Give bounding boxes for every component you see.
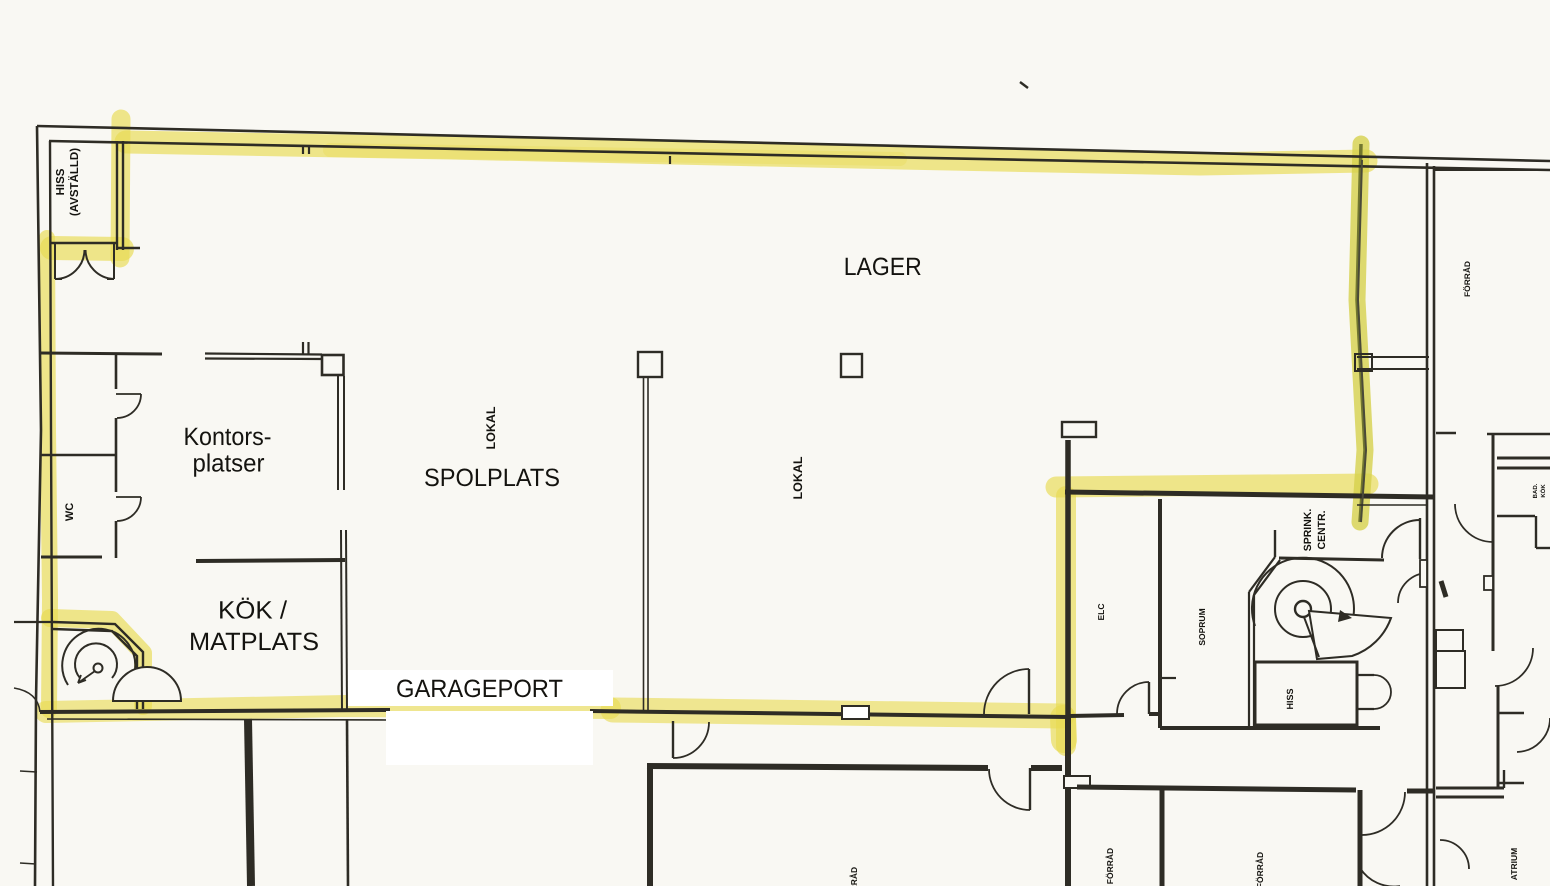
svg-text:FÖRRÅD: FÖRRÅD xyxy=(849,867,859,886)
svg-text:WC: WC xyxy=(64,503,76,521)
svg-text:FÖRRÅD: FÖRRÅD xyxy=(1462,261,1472,297)
svg-text:CENTR.: CENTR. xyxy=(1316,510,1328,549)
svg-text:BAD.: BAD. xyxy=(1532,483,1539,498)
svg-text:platser: platser xyxy=(193,450,265,478)
svg-text:LAGER: LAGER xyxy=(844,253,922,281)
svg-text:MATPLATS: MATPLATS xyxy=(189,628,319,656)
svg-text:FÖRRÅD: FÖRRÅD xyxy=(1105,848,1115,884)
svg-text:GARAGEPORT: GARAGEPORT xyxy=(396,675,563,703)
svg-text:SPOLPLATS: SPOLPLATS xyxy=(424,464,560,492)
svg-text:ATRIUM: ATRIUM xyxy=(1509,848,1519,880)
svg-text:KÖK: KÖK xyxy=(1539,484,1547,498)
svg-text:ELC: ELC xyxy=(1096,604,1106,621)
svg-text:LOKAL: LOKAL xyxy=(791,456,805,499)
svg-text:LOKAL: LOKAL xyxy=(484,406,498,449)
svg-text:SPRINK.: SPRINK. xyxy=(1302,509,1314,552)
svg-text:HISS: HISS xyxy=(1285,688,1295,709)
svg-text:KÖK /: KÖK / xyxy=(218,597,287,625)
svg-text:Kontors-: Kontors- xyxy=(184,423,272,451)
svg-text:(AVSTÄLLD): (AVSTÄLLD) xyxy=(68,148,81,216)
svg-text:FÖRRÅD: FÖRRÅD xyxy=(1255,852,1265,886)
svg-text:HISS: HISS xyxy=(55,168,67,195)
svg-text:SOPRUM: SOPRUM xyxy=(1197,608,1207,645)
